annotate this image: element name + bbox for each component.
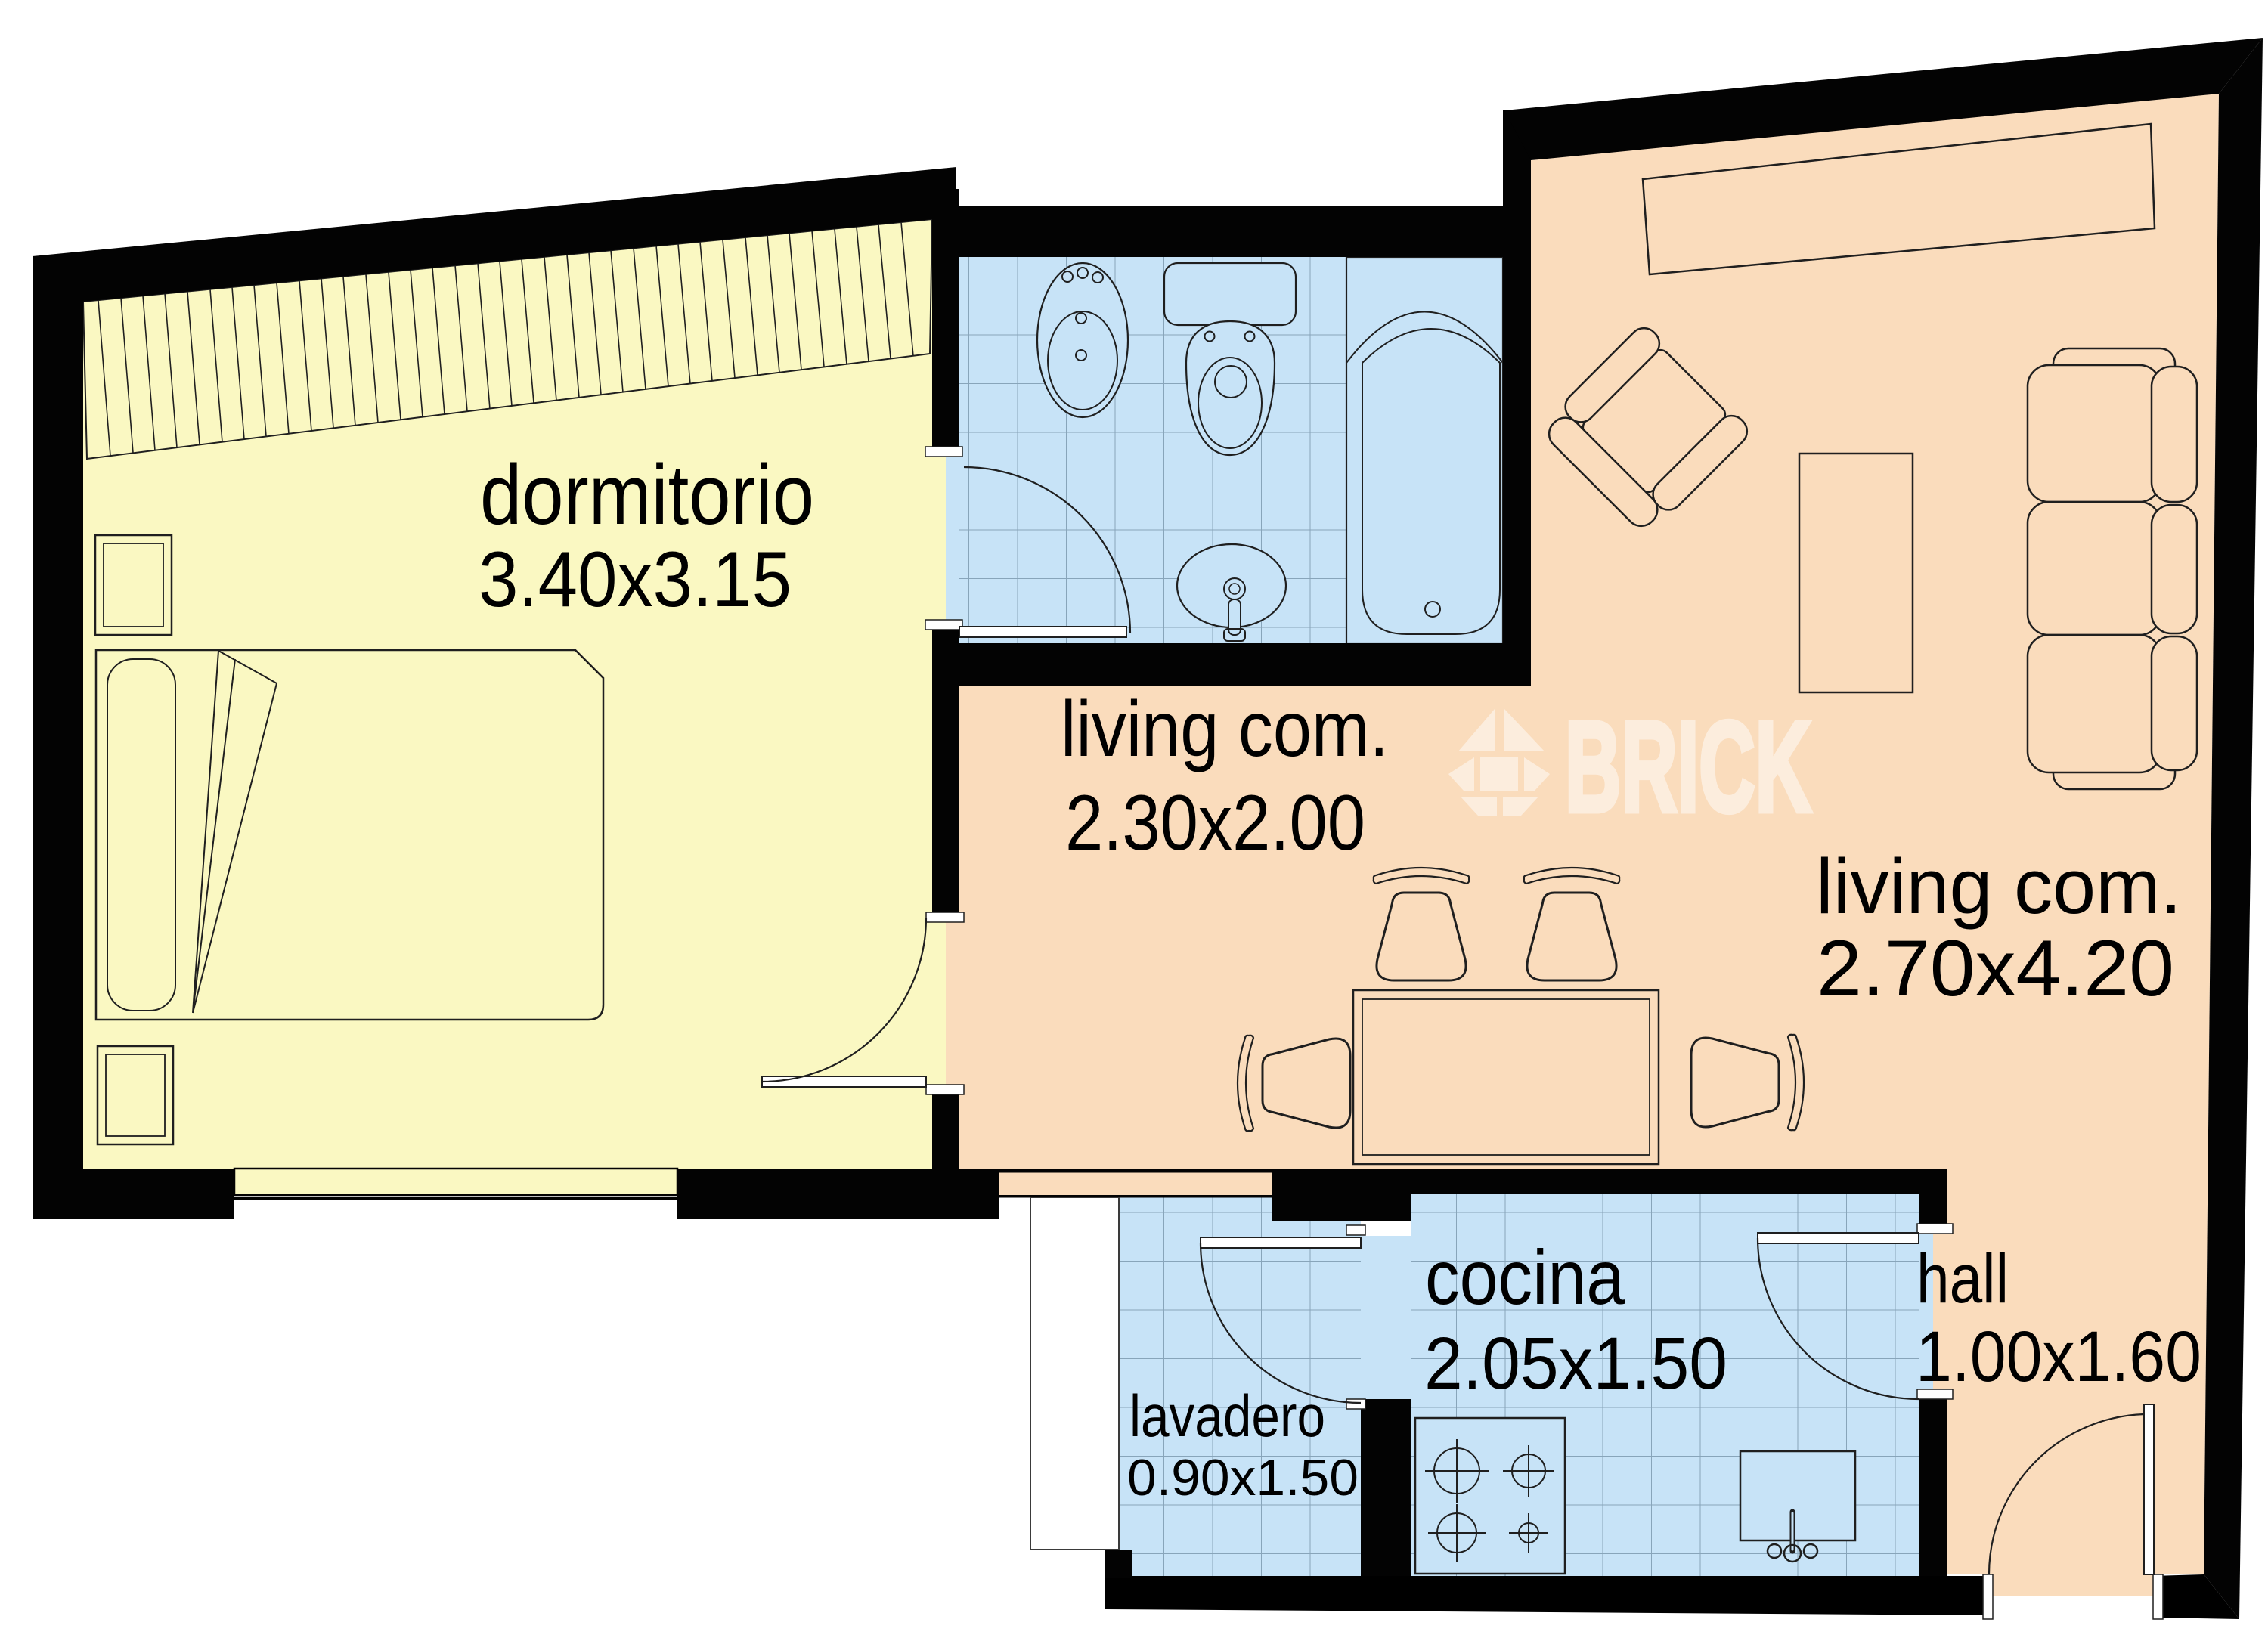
svg-text:1.00x1.60: 1.00x1.60 bbox=[1916, 1317, 2201, 1397]
svg-text:cocina: cocina bbox=[1425, 1234, 1625, 1320]
svg-text:3.40x3.15: 3.40x3.15 bbox=[479, 536, 792, 624]
svg-text:living com.: living com. bbox=[1816, 843, 2182, 930]
svg-text:hall: hall bbox=[1916, 1240, 2009, 1317]
svg-text:2.05x1.50: 2.05x1.50 bbox=[1424, 1322, 1727, 1404]
svg-text:0.90x1.50: 0.90x1.50 bbox=[1127, 1449, 1359, 1506]
svg-text:BRICK: BRICK bbox=[1565, 695, 1811, 839]
svg-text:2.70x4.20: 2.70x4.20 bbox=[1817, 924, 2174, 1013]
svg-text:lavadero: lavadero bbox=[1129, 1382, 1325, 1449]
svg-text:dormitorio: dormitorio bbox=[480, 447, 814, 542]
svg-text:2.30x2.00: 2.30x2.00 bbox=[1065, 779, 1365, 867]
svg-text:living com.: living com. bbox=[1061, 686, 1389, 773]
